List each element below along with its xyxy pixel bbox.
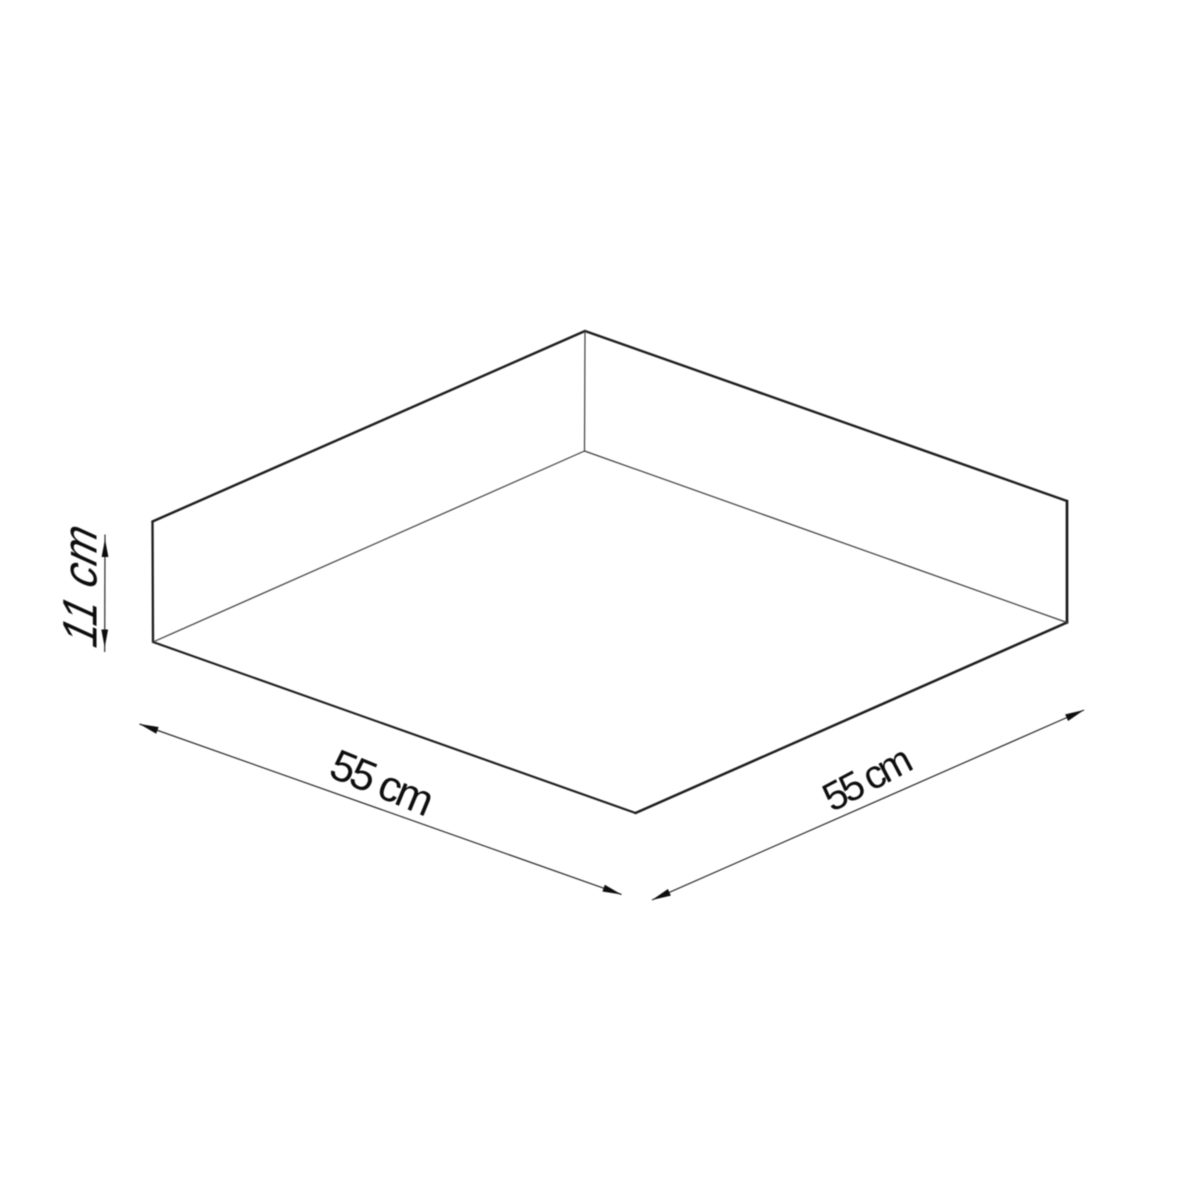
svg-text:11 cm: 11 cm — [53, 518, 107, 652]
